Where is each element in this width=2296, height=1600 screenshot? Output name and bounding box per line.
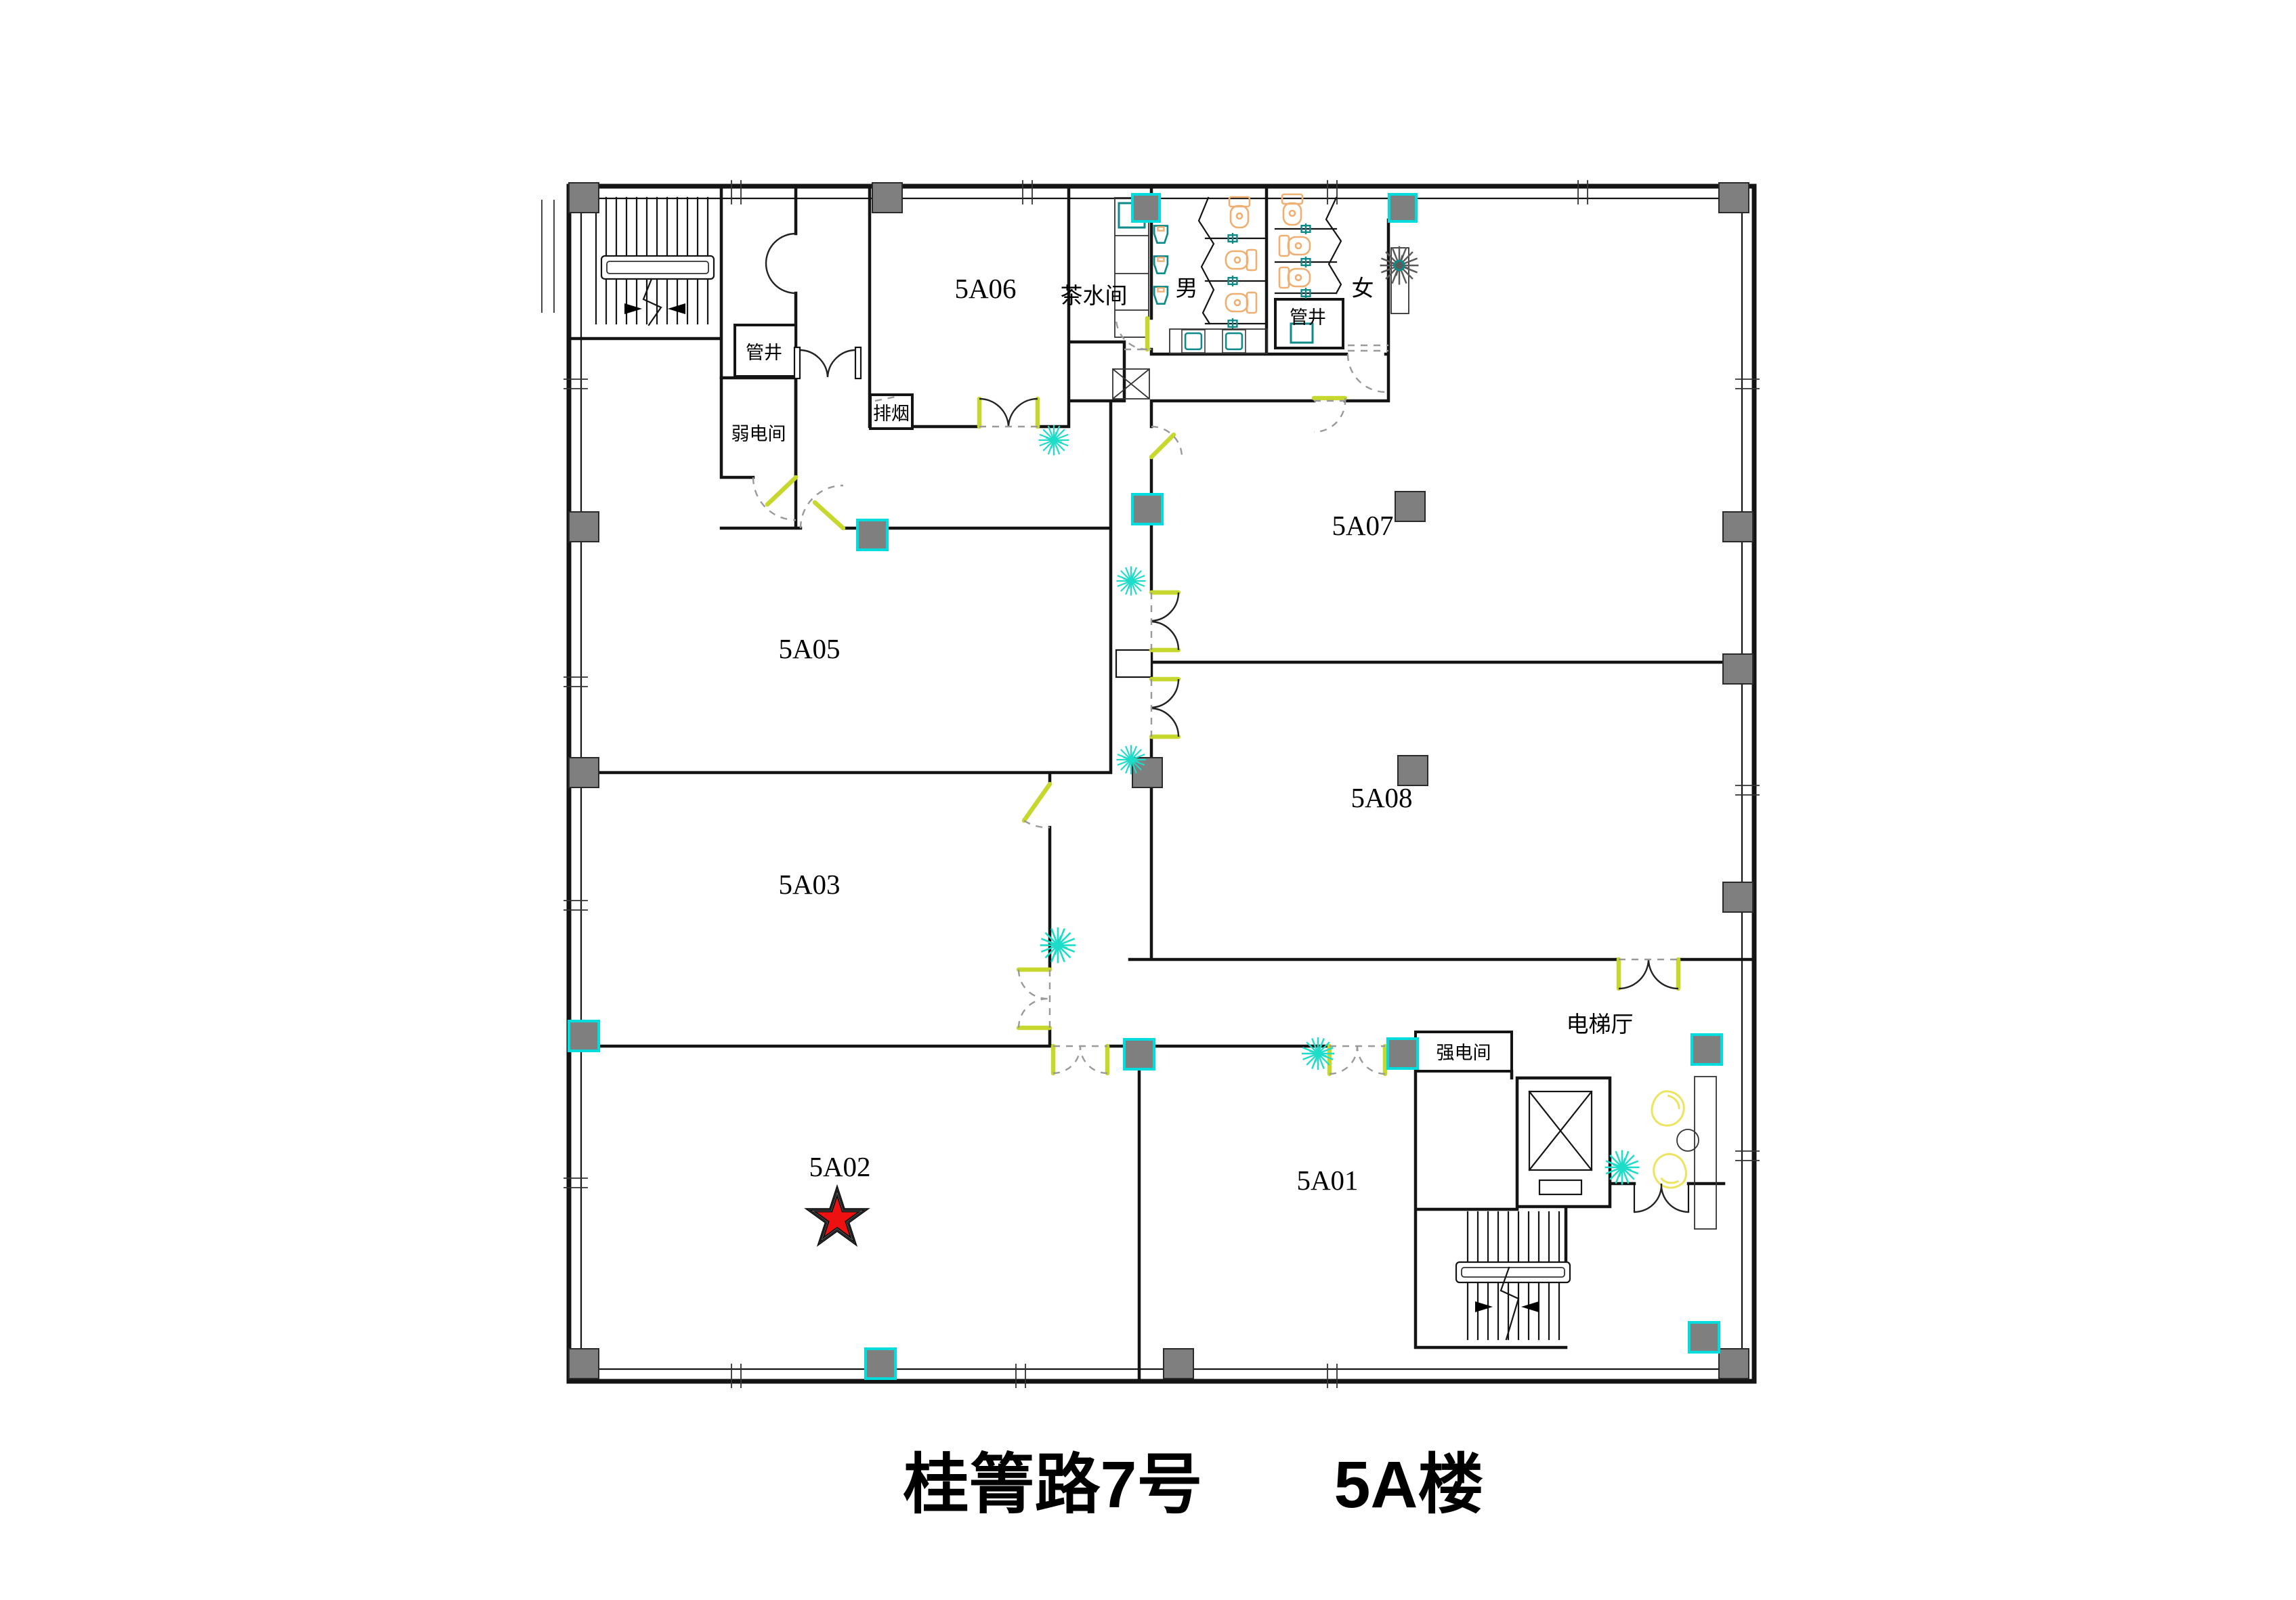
room-label-smoke-exhaust: 排烟 <box>873 404 910 424</box>
flower-decoration <box>1652 1091 1684 1126</box>
room-label-5A05: 5A05 <box>778 633 840 664</box>
room-label-weak-current: 弱电间 <box>731 424 786 444</box>
room-label-5A03: 5A03 <box>778 869 840 900</box>
room-label-male-wc: 男 <box>1176 276 1198 301</box>
plant <box>1040 928 1076 964</box>
room-label-5A08: 5A08 <box>1351 782 1412 813</box>
staircase-bottom-right <box>1456 1212 1570 1339</box>
room-label-strong-current: 强电间 <box>1437 1043 1491 1063</box>
urinal <box>1154 257 1168 274</box>
plant <box>1116 566 1145 595</box>
room-label-5A06: 5A06 <box>954 273 1016 304</box>
toilet <box>1279 267 1310 288</box>
staircase-top-left <box>596 198 714 325</box>
plant <box>1039 425 1069 456</box>
stall-partition <box>1326 198 1341 293</box>
female-restroom-fixtures <box>1275 194 1341 299</box>
bench-planter <box>1695 1077 1716 1229</box>
toilet <box>1279 236 1310 256</box>
toilet <box>1229 197 1250 228</box>
room-label-pipe-shaft-core: 管井 <box>1290 307 1326 328</box>
flower-decoration <box>1646 1148 1693 1194</box>
stall-partition <box>1199 198 1214 324</box>
room-label-elevator-hall: 电梯厅 <box>1567 1012 1634 1037</box>
room-label-5A07: 5A07 <box>1332 510 1393 541</box>
room-label-tea-room: 茶水间 <box>1061 283 1128 308</box>
corridor-wall-stub <box>1116 650 1151 677</box>
toilet <box>1226 250 1256 270</box>
location-star-marker <box>806 1186 868 1245</box>
stool <box>1677 1129 1699 1151</box>
room-label-female-wc: 女 <box>1352 276 1374 301</box>
plan-title: 桂箐路7号 5A楼 <box>903 1448 1484 1521</box>
elevator-shaft <box>1517 1078 1610 1207</box>
toilet <box>1226 293 1256 313</box>
plant <box>1116 745 1145 774</box>
elevator-hall-furniture <box>1646 1077 1716 1229</box>
urinal <box>1154 287 1168 304</box>
sink <box>1223 330 1246 353</box>
room-label-5A01: 5A01 <box>1296 1165 1358 1196</box>
floor-plan-page: 5A06 茶水间 男 女 管井 管井 弱电间 排烟 5A05 5A07 5A08… <box>0 0 2296 1600</box>
urinal <box>1154 226 1168 243</box>
room-label-pipe-shaft-top: 管井 <box>746 343 782 363</box>
floor-plan-drawing: 5A06 茶水间 男 女 管井 管井 弱电间 排烟 5A05 5A07 5A08… <box>0 0 2296 1600</box>
room-label-5A02: 5A02 <box>809 1151 870 1182</box>
doors <box>753 234 1688 1212</box>
roof-drain <box>1380 246 1419 285</box>
male-restroom-fixtures <box>1154 197 1267 353</box>
sink <box>1182 330 1205 353</box>
